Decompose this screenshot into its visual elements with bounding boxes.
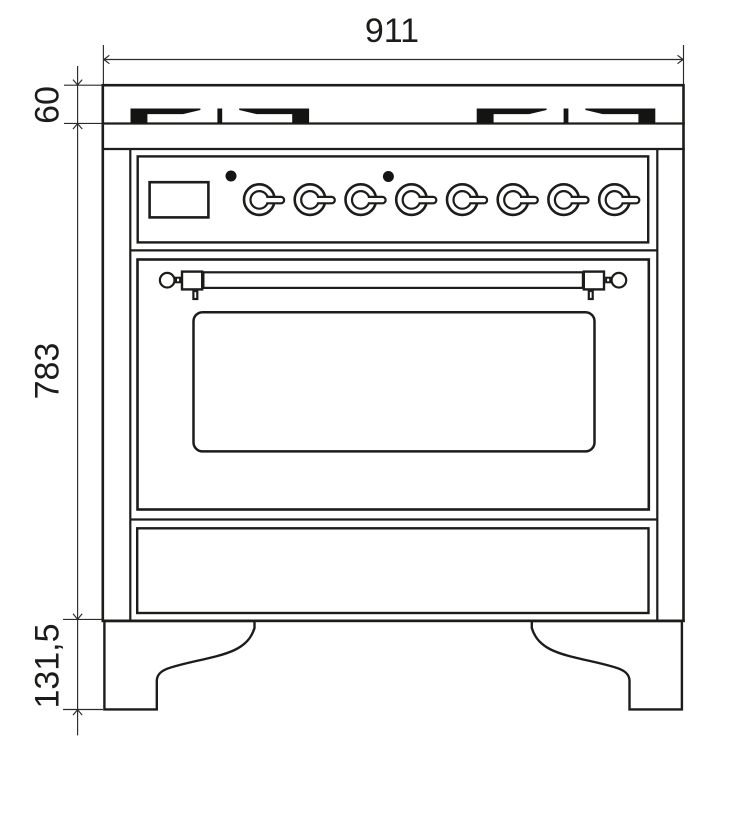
svg-text:131,5: 131,5 xyxy=(29,623,67,708)
svg-text:911: 911 xyxy=(365,12,419,50)
svg-text:783: 783 xyxy=(29,343,67,400)
svg-text:60: 60 xyxy=(29,86,67,124)
